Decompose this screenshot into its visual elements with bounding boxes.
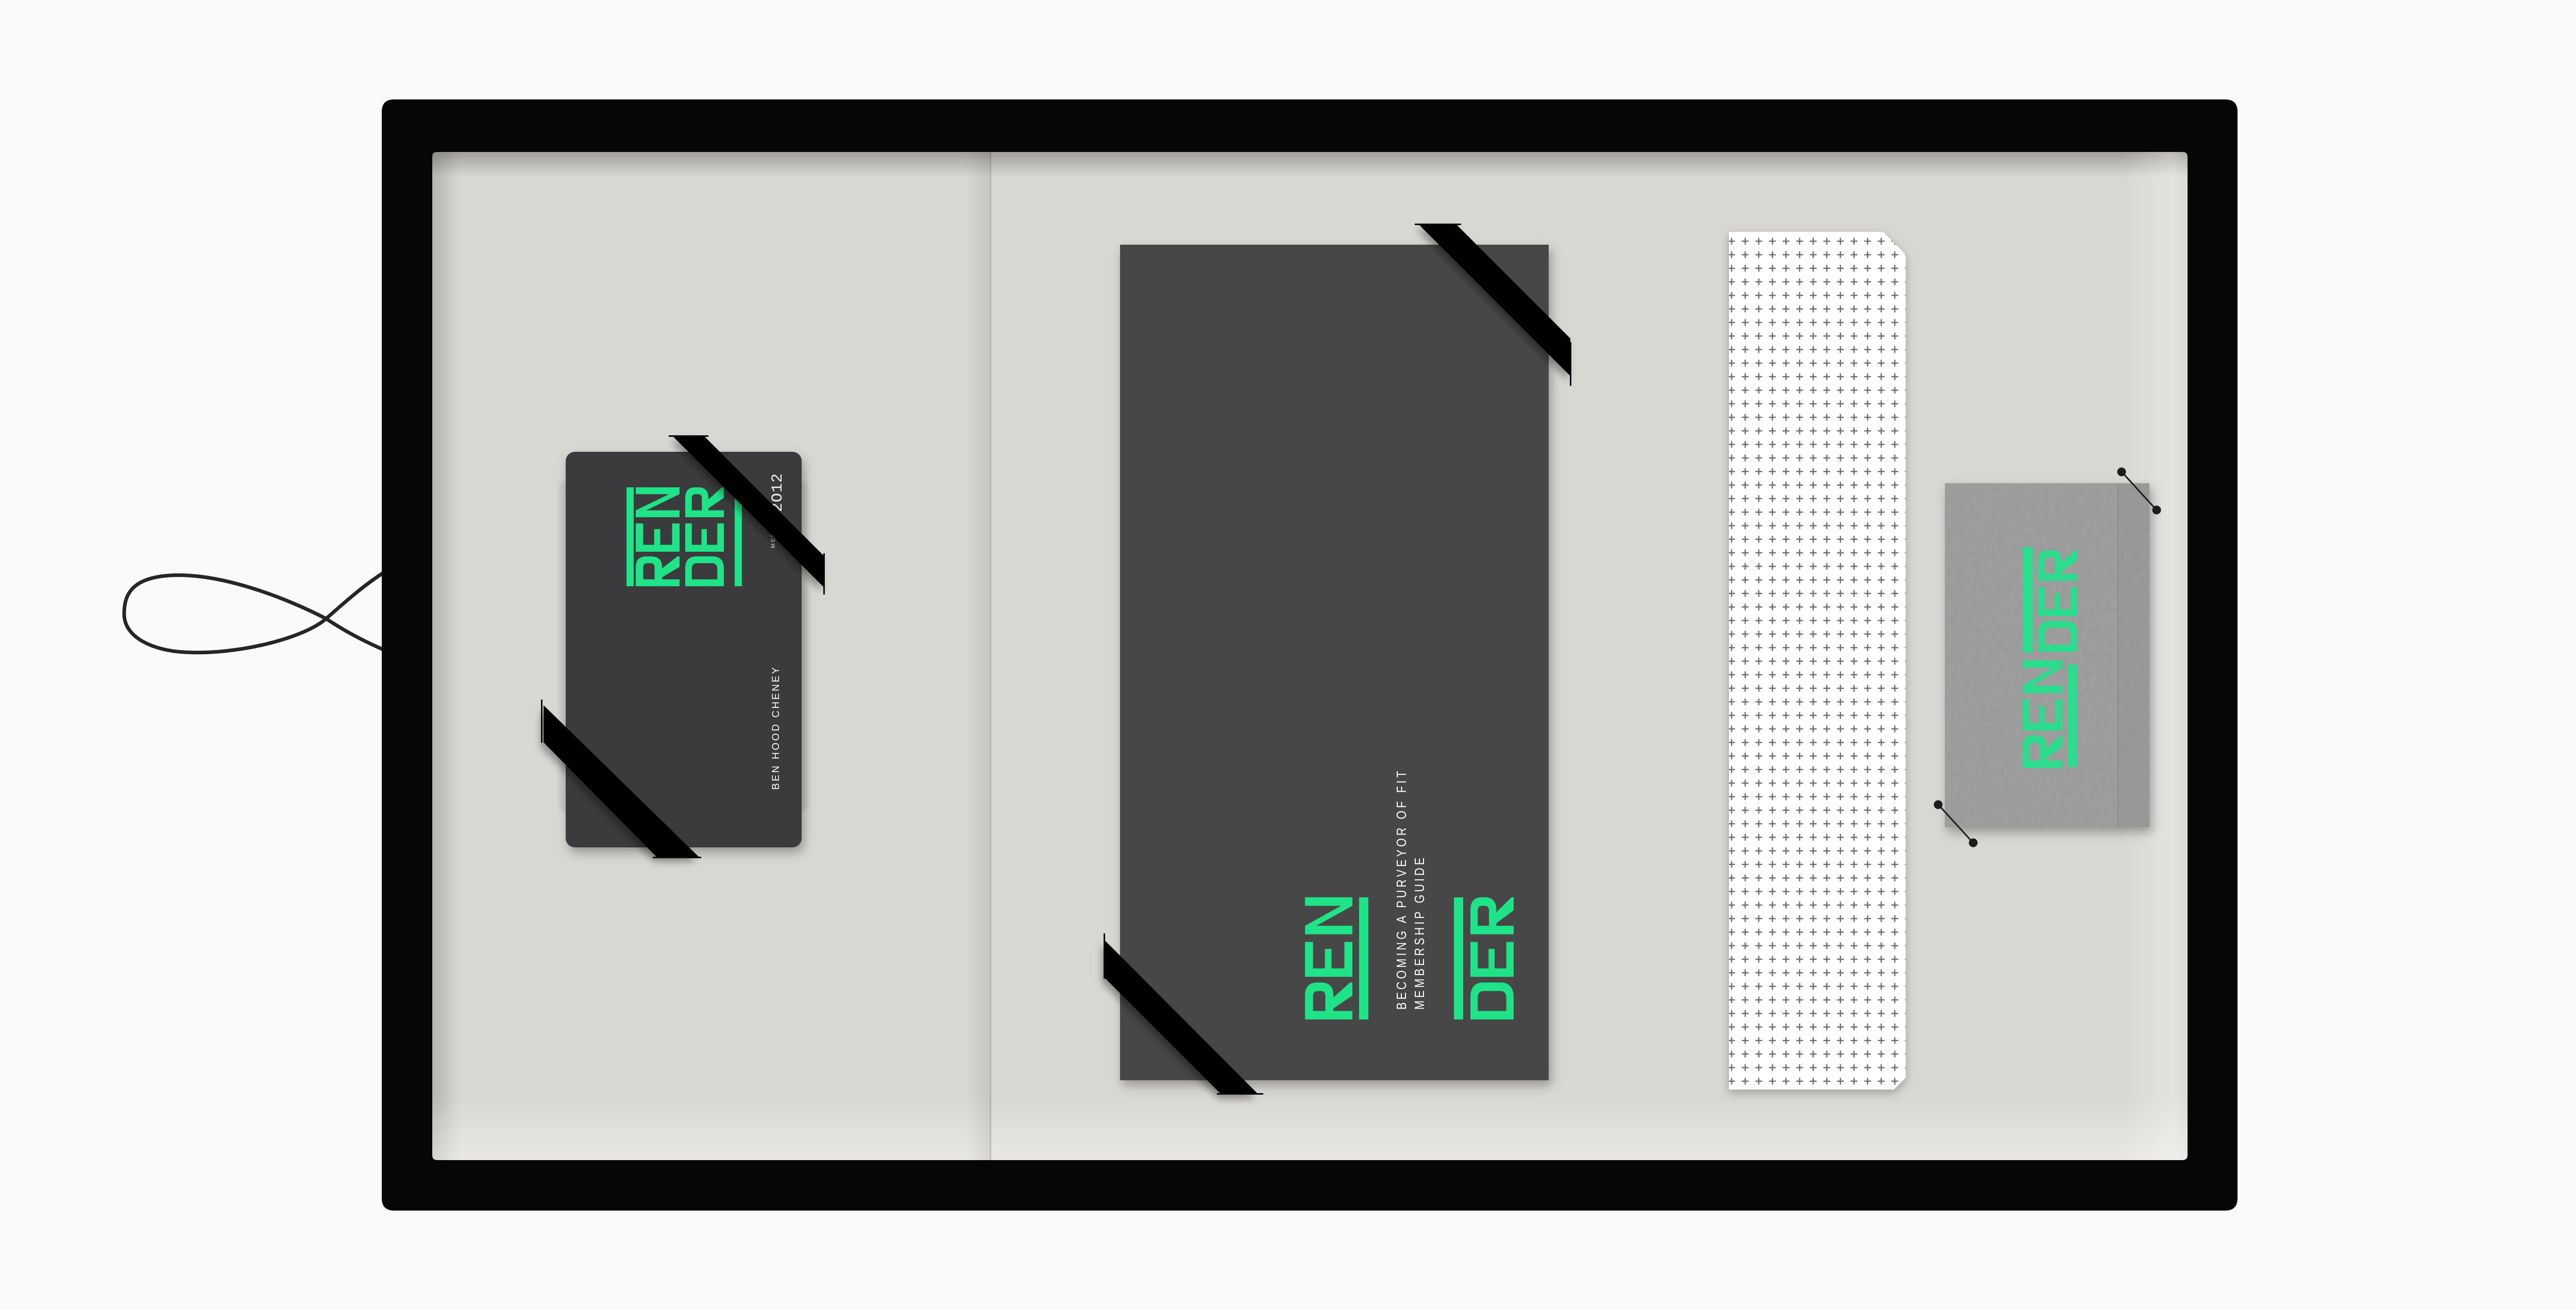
svg-text:MEMBERSHIP GUIDE: MEMBERSHIP GUIDE <box>1412 855 1427 1010</box>
svg-text:BEN HOOD CHENEY: BEN HOOD CHENEY <box>771 666 782 790</box>
svg-text:BECOMING A PURVEYOR OF FIT: BECOMING A PURVEYOR OF FIT <box>1394 769 1409 1010</box>
